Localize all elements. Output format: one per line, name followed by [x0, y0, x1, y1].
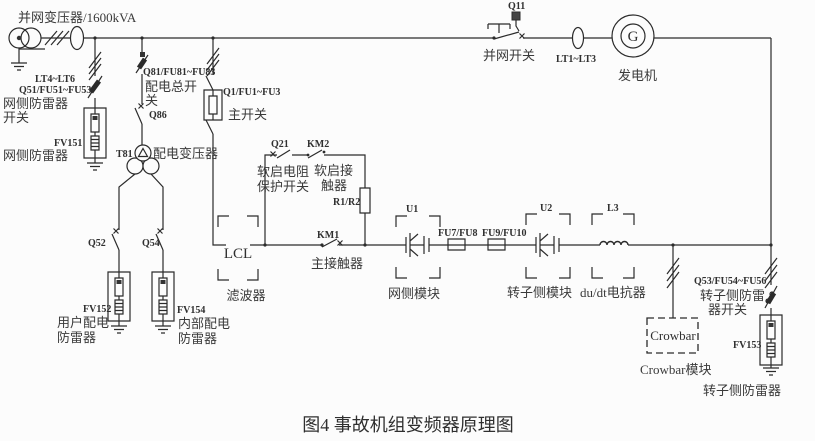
label-t81: T81: [116, 149, 133, 160]
label-q11: Q11: [508, 1, 525, 12]
l3-reactor-box: [592, 214, 634, 278]
label-km2-desc1: 软启接: [314, 163, 353, 178]
diagram-title: 并网变压器/1600kVA: [18, 10, 137, 25]
label-q81-desc1: 配电总开: [145, 79, 197, 94]
switch-q86-icon: [135, 104, 144, 125]
label-crowbar: Crowbar: [650, 328, 696, 343]
label-q11-desc: 并网开关: [483, 48, 535, 63]
label-fv154-desc1: 内部配电: [178, 316, 230, 331]
arrester-fv154-icon: [152, 272, 174, 321]
fuse-switch-q53-icon: [765, 286, 777, 308]
u1-module-box: [396, 216, 440, 278]
label-crowbar-desc: Crowbar模块: [640, 362, 712, 377]
label-q81: Q81/FU81~FU83: [143, 67, 215, 78]
contactor-km2-icon: [307, 150, 326, 158]
transformer-neutral-wire: [19, 49, 45, 63]
grid-transformer-icon: [9, 28, 41, 48]
label-q53-desc1: 转子侧防雷: [700, 288, 765, 303]
label-u2-desc: 转子侧模块: [507, 285, 572, 300]
label-q21-desc1: 软启电阻: [257, 164, 309, 179]
ground-icon: [11, 63, 27, 70]
t81-secondary-wires: [119, 174, 163, 230]
label-fv152: FV152: [83, 304, 111, 315]
switch-q52-icon: [112, 229, 119, 251]
label-u1: U1: [406, 204, 418, 215]
label-q21-desc2: 保护开关: [257, 179, 309, 194]
label-km1-desc: 主接触器: [311, 256, 363, 271]
label-q52: Q52: [88, 238, 106, 249]
label-lcl: LCL: [224, 246, 252, 262]
u2-module-box: [526, 214, 570, 278]
label-km2: KM2: [307, 139, 329, 150]
label-q51-desc2: 开关: [3, 110, 29, 125]
ground-icon: [87, 163, 103, 170]
label-generator-desc: 发电机: [618, 68, 657, 83]
ct-lt4-lt6-icon: [71, 27, 84, 50]
label-km2-desc2: 触器: [321, 178, 347, 193]
circuit-diagram: 并网变压器/1600kVA LT4~LT6 Q51/FU51~FU53 网侧防雷…: [0, 0, 815, 441]
ground-icon: [763, 368, 779, 375]
label-q86: Q86: [149, 110, 167, 121]
label-q21: Q21: [271, 139, 289, 150]
arrester-fv153-icon: [760, 315, 782, 365]
label-km1: KM1: [317, 230, 339, 241]
switch-q21-icon: [271, 150, 291, 158]
label-generator-g: G: [628, 29, 639, 45]
figure-caption: 图4 事故机组变频器原理图: [302, 415, 514, 435]
label-u2: U2: [540, 203, 552, 214]
label-fv152-desc2: 防雷器: [57, 330, 96, 345]
label-lt4-lt6: LT4~LT6: [35, 74, 75, 85]
label-l3: L3: [607, 203, 619, 214]
label-q54: Q54: [142, 238, 160, 249]
schematic-page: 并网变压器/1600kVA LT4~LT6 Q51/FU51~FU53 网侧防雷…: [0, 0, 815, 441]
label-fv154-desc2: 防雷器: [178, 331, 217, 346]
ct-lt1-lt3-icon: [573, 28, 584, 49]
label-u1-desc: 网侧模块: [388, 286, 440, 301]
inductor-coil-icon: [600, 242, 628, 246]
label-fv153-desc: 转子侧防雷器: [703, 383, 781, 398]
label-t81-desc: 配电变压器: [153, 146, 218, 161]
label-l3-desc: du/dt电抗器: [580, 285, 646, 300]
label-q51: Q51/FU51~FU53: [19, 85, 91, 96]
label-lt1-lt3: LT1~LT3: [556, 54, 596, 65]
label-fu9-fu10: FU9/FU10: [482, 228, 526, 239]
switch-q11-icon: [488, 12, 525, 40]
label-fv152-desc1: 用户配电: [57, 315, 109, 330]
label-fv154: FV154: [177, 305, 205, 316]
label-q53-desc2: 器开关: [708, 302, 747, 317]
u2-capacitor-icon: [554, 236, 559, 254]
main-switch-q1-icon: [204, 76, 222, 134]
resistor-r1-r2-icon: [360, 188, 370, 213]
arrester-fv151-icon: [84, 108, 106, 158]
label-fu7-fu8: FU7/FU8: [438, 228, 477, 239]
label-q53: Q53/FU54~FU56: [694, 276, 766, 287]
arrester-drop-wires: [119, 250, 163, 326]
ground-icon: [111, 326, 127, 333]
label-q1-desc: 主开关: [228, 107, 267, 122]
ground-icon: [155, 326, 171, 333]
label-q1: Q1/FU1~FU3: [223, 87, 280, 98]
label-q81-desc2: 关: [145, 93, 158, 108]
label-fv151-desc: 网侧防雷器: [3, 148, 68, 163]
u1-capacitor-icon: [424, 236, 429, 254]
label-q51-desc1: 网侧防雷器: [3, 96, 68, 111]
label-lcl-desc: 滤波器: [226, 288, 265, 303]
label-r1-r2: R1/R2: [333, 197, 360, 208]
label-fv153: FV153: [733, 340, 761, 351]
